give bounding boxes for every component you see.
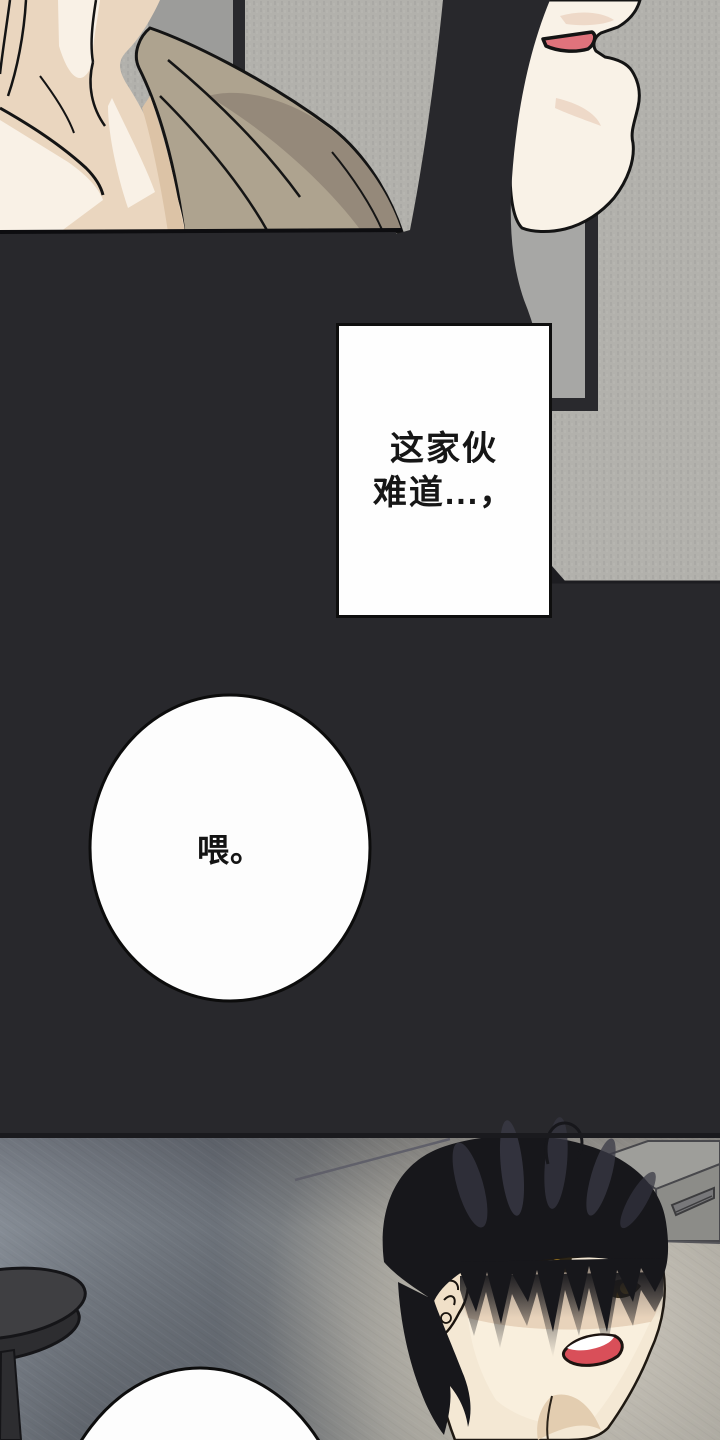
- black-haired-character: [383, 1116, 668, 1440]
- thought-line-1: 这家伙: [390, 427, 498, 471]
- panel-top-outline: [0, 230, 402, 232]
- panel-bottom-scene: [0, 1116, 720, 1440]
- thought-box: 这家伙 难道...，: [336, 323, 552, 618]
- shout-bubble-text: 喂。: [130, 818, 330, 878]
- frame-bar-bottom: [550, 398, 598, 411]
- thought-line-2: 难道...，: [373, 471, 515, 515]
- panel-separator: [0, 1133, 720, 1138]
- comic-page: 这家伙 难道...， 喂。: [0, 0, 720, 1440]
- comic-artwork: [0, 0, 720, 1440]
